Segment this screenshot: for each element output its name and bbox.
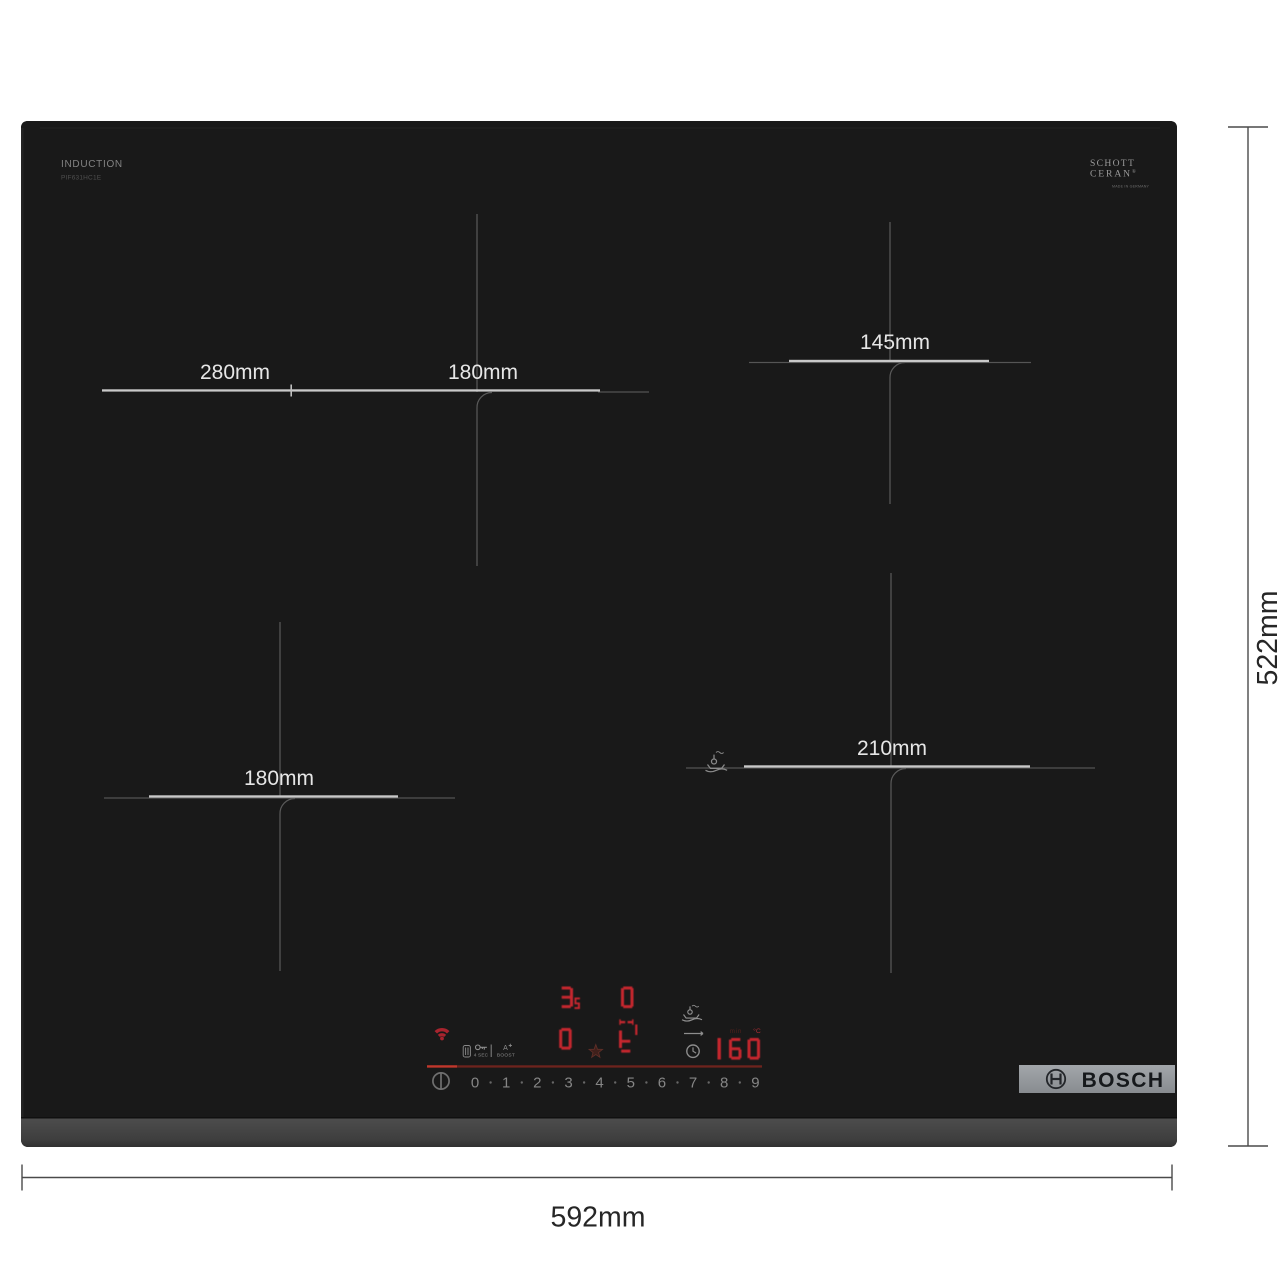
svg-text:°C: °C — [753, 1027, 761, 1035]
svg-text:CERAN®: CERAN® — [1090, 169, 1138, 180]
svg-text:592mm: 592mm — [550, 1202, 645, 1234]
svg-text:9: 9 — [751, 1075, 759, 1092]
svg-text:PIF631HC1E: PIF631HC1E — [61, 175, 102, 182]
svg-text:INDUCTION: INDUCTION — [61, 159, 123, 170]
svg-text:7: 7 — [689, 1075, 697, 1092]
svg-text:522mm: 522mm — [1252, 590, 1280, 685]
svg-text:BOOST: BOOST — [497, 1053, 515, 1059]
svg-text:8: 8 — [720, 1075, 728, 1092]
svg-text:4 SEC: 4 SEC — [474, 1053, 489, 1058]
svg-text:180mm: 180mm — [244, 767, 314, 790]
svg-text:3: 3 — [564, 1075, 572, 1092]
svg-text:145mm: 145mm — [860, 331, 930, 354]
svg-text:180mm: 180mm — [448, 361, 518, 384]
svg-text:280mm: 280mm — [200, 361, 270, 384]
svg-text:MADE IN GERMANY: MADE IN GERMANY — [1112, 185, 1150, 189]
svg-text:0: 0 — [471, 1075, 479, 1092]
svg-text:min: min — [730, 1029, 742, 1035]
svg-text:A: A — [503, 1045, 508, 1052]
svg-text:5: 5 — [627, 1075, 635, 1092]
svg-text:BOSCH: BOSCH — [1082, 1069, 1165, 1092]
svg-text:210mm: 210mm — [857, 737, 927, 760]
svg-text:6: 6 — [658, 1075, 666, 1092]
svg-text:SCHOTT: SCHOTT — [1090, 158, 1135, 169]
svg-text:1: 1 — [502, 1075, 510, 1092]
svg-text:4: 4 — [595, 1075, 603, 1092]
svg-text:2: 2 — [533, 1075, 541, 1092]
